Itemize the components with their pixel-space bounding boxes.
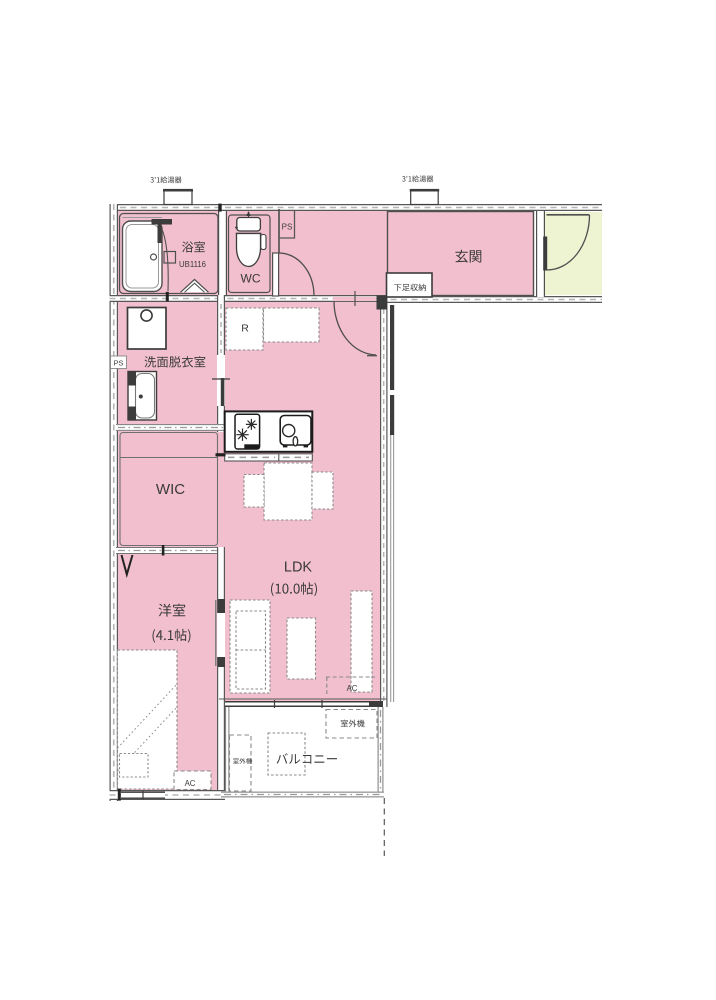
svg-text:WC: WC: [241, 272, 261, 286]
svg-text:R: R: [241, 323, 249, 335]
svg-text:LDK: LDK: [284, 560, 313, 576]
svg-text:AC: AC: [347, 684, 358, 693]
svg-text:WIC: WIC: [156, 481, 185, 498]
svg-text:PS: PS: [114, 359, 124, 368]
svg-text:UB1116: UB1116: [179, 260, 206, 269]
svg-text:PS: PS: [282, 223, 293, 232]
svg-text:AC: AC: [185, 779, 196, 788]
